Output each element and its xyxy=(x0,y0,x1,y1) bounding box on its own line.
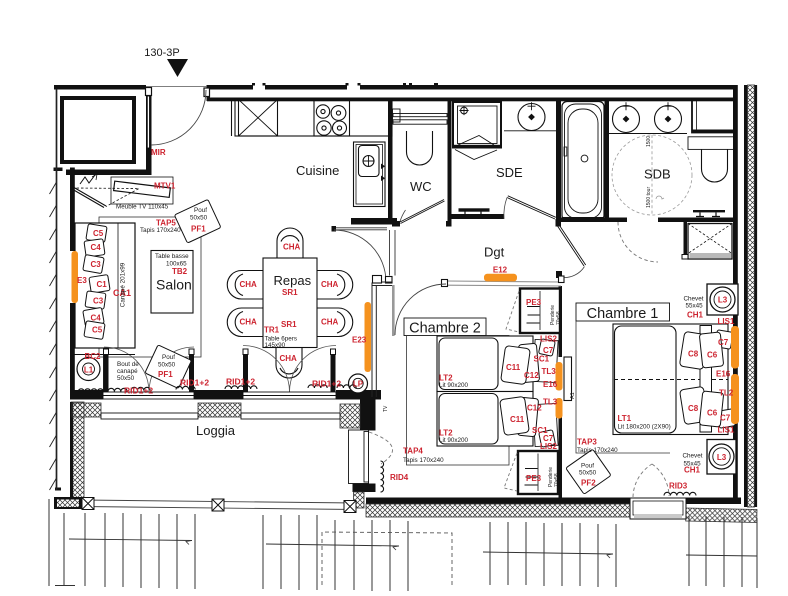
svg-text:Repas: Repas xyxy=(274,273,312,288)
svg-text:C7: C7 xyxy=(720,414,731,423)
svg-text:70x58: 70x58 xyxy=(554,473,560,487)
svg-text:TB2: TB2 xyxy=(172,267,188,276)
svg-text:C8: C8 xyxy=(688,404,699,413)
svg-text:50x50: 50x50 xyxy=(579,470,597,477)
svg-text:E16: E16 xyxy=(543,380,558,389)
svg-text:Pouf: Pouf xyxy=(194,207,207,214)
svg-text:Chevet: Chevet xyxy=(683,453,703,460)
svg-text:C3: C3 xyxy=(91,260,102,269)
svg-text:RID1+2: RID1+2 xyxy=(180,378,209,388)
svg-text:Cuisine: Cuisine xyxy=(296,163,339,178)
svg-text:Lit 90x200: Lit 90x200 xyxy=(439,437,469,444)
svg-text:L3: L3 xyxy=(717,453,727,462)
svg-text:E12: E12 xyxy=(493,266,508,275)
svg-text:Tapis 170x240: Tapis 170x240 xyxy=(140,227,181,234)
svg-text:Salon: Salon xyxy=(156,277,192,293)
svg-text:Loggia: Loggia xyxy=(196,423,236,438)
svg-text:RID1+2: RID1+2 xyxy=(312,379,341,389)
svg-text:C3: C3 xyxy=(93,297,104,306)
svg-text:CHA: CHA xyxy=(240,280,258,289)
svg-text:70x58: 70x58 xyxy=(556,311,562,325)
svg-text:C12: C12 xyxy=(527,404,542,413)
svg-text:C8: C8 xyxy=(688,350,699,359)
svg-text:1500: 1500 xyxy=(646,136,652,147)
svg-text:WC: WC xyxy=(410,179,432,194)
svg-text:E23: E23 xyxy=(352,336,367,345)
svg-text:TL3: TL3 xyxy=(543,398,558,407)
svg-text:C5: C5 xyxy=(92,326,103,335)
svg-text:C4: C4 xyxy=(91,314,102,323)
svg-text:LIS2: LIS2 xyxy=(540,335,557,344)
svg-text:Chevet: Chevet xyxy=(684,296,704,303)
svg-text:Table basse: Table basse xyxy=(155,253,189,260)
svg-text:MTV1: MTV1 xyxy=(154,182,176,191)
svg-text:Chambre 2: Chambre 2 xyxy=(409,321,481,337)
svg-text:LT1: LT1 xyxy=(618,414,632,423)
svg-text:PF2: PF2 xyxy=(581,479,596,488)
svg-text:C11: C11 xyxy=(506,363,521,372)
svg-text:C7: C7 xyxy=(718,338,729,347)
svg-text:SDE: SDE xyxy=(496,165,523,180)
svg-text:C1: C1 xyxy=(97,280,108,289)
svg-text:TR1: TR1 xyxy=(264,326,280,335)
svg-text:CHA: CHA xyxy=(321,280,339,289)
svg-text:C6: C6 xyxy=(707,351,718,360)
svg-text:MIR: MIR xyxy=(151,148,166,157)
svg-text:L1: L1 xyxy=(84,366,94,375)
svg-text:LIS1: LIS1 xyxy=(718,317,735,326)
svg-text:PE3: PE3 xyxy=(526,298,542,307)
svg-text:canapé: canapé xyxy=(117,368,138,375)
svg-text:TL2: TL2 xyxy=(719,389,734,398)
svg-text:SC1: SC1 xyxy=(534,355,550,364)
svg-text:SR1: SR1 xyxy=(281,320,297,329)
svg-text:RID3: RID3 xyxy=(669,482,688,491)
svg-text:TL3: TL3 xyxy=(542,367,557,376)
svg-text:C12: C12 xyxy=(524,371,539,380)
svg-text:Pouf: Pouf xyxy=(162,354,175,361)
svg-text:Canapé 201x99: Canapé 201x99 xyxy=(120,262,127,307)
svg-text:130-3P: 130-3P xyxy=(144,47,179,59)
svg-text:RID4: RID4 xyxy=(390,473,409,482)
svg-text:SDB: SDB xyxy=(644,167,671,182)
svg-text:145x90: 145x90 xyxy=(265,342,286,349)
svg-text:CH1: CH1 xyxy=(684,466,701,475)
svg-text:RID1+2: RID1+2 xyxy=(124,386,153,396)
svg-text:100x65: 100x65 xyxy=(166,261,187,268)
svg-text:50x50: 50x50 xyxy=(190,215,208,222)
svg-text:C5: C5 xyxy=(93,229,104,238)
svg-text:BC2: BC2 xyxy=(85,352,102,361)
svg-text:LP: LP xyxy=(353,380,364,389)
svg-text:Tapis 170x240: Tapis 170x240 xyxy=(403,457,444,464)
svg-text:Meuble TV 110x45: Meuble TV 110x45 xyxy=(116,204,169,211)
svg-text:E3: E3 xyxy=(77,276,87,285)
svg-text:CH1: CH1 xyxy=(687,311,704,320)
svg-text:SR1: SR1 xyxy=(282,288,298,297)
svg-text:Pouf: Pouf xyxy=(581,463,594,470)
svg-text:PE3: PE3 xyxy=(526,474,542,483)
svg-text:TAP4: TAP4 xyxy=(403,447,423,456)
svg-text:1500 tour: 1500 tour xyxy=(646,187,652,208)
svg-text:PF1: PF1 xyxy=(158,370,173,379)
svg-text:E16: E16 xyxy=(716,370,731,379)
svg-text:CHA: CHA xyxy=(321,318,339,327)
svg-text:Tapis 170x240: Tapis 170x240 xyxy=(577,447,618,454)
svg-text:A1: A1 xyxy=(570,392,576,399)
svg-text:CHA: CHA xyxy=(280,354,298,363)
svg-text:C6: C6 xyxy=(707,409,718,418)
svg-text:50x50: 50x50 xyxy=(117,375,135,382)
svg-text:Lit 180x200 (2X90): Lit 180x200 (2X90) xyxy=(618,424,671,431)
svg-text:TAP3: TAP3 xyxy=(577,438,597,447)
svg-text:C11: C11 xyxy=(510,415,525,424)
svg-text:CHA: CHA xyxy=(240,318,258,327)
svg-text:LIS2: LIS2 xyxy=(540,442,557,451)
svg-text:LIS1: LIS1 xyxy=(718,426,735,435)
svg-text:CHA: CHA xyxy=(283,243,301,252)
svg-text:55x45: 55x45 xyxy=(686,303,704,310)
svg-text:PF1: PF1 xyxy=(191,225,206,234)
svg-text:L3: L3 xyxy=(718,296,728,305)
svg-text:Bout de: Bout de xyxy=(117,361,139,368)
svg-text:Dgt: Dgt xyxy=(484,245,505,260)
svg-text:50x50: 50x50 xyxy=(158,362,176,369)
svg-text:Chambre 1: Chambre 1 xyxy=(587,306,659,322)
svg-text:C4: C4 xyxy=(91,243,102,252)
svg-text:Lit 90x200: Lit 90x200 xyxy=(439,382,469,389)
svg-text:RID1+2: RID1+2 xyxy=(226,377,255,387)
svg-text:TV: TV xyxy=(383,405,389,412)
